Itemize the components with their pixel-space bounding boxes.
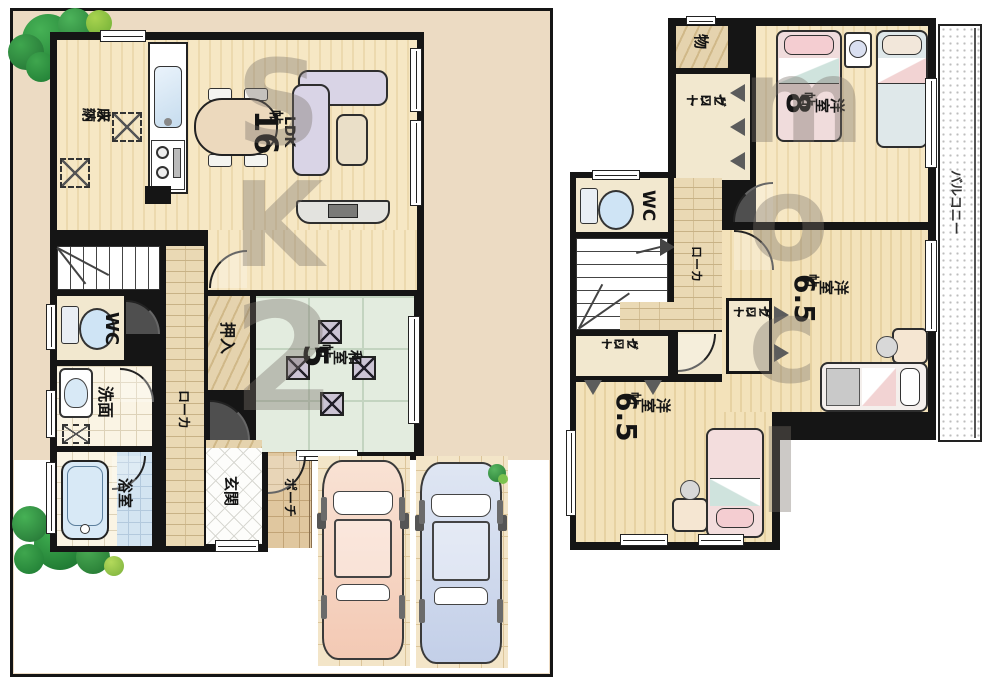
window bbox=[410, 48, 422, 112]
room-hallway-2f-stub bbox=[620, 302, 674, 330]
hanger-icon bbox=[730, 84, 745, 102]
window bbox=[620, 534, 668, 546]
hanger-icon bbox=[774, 344, 789, 362]
hanger-icon bbox=[730, 118, 745, 136]
bed-blanket bbox=[826, 368, 860, 406]
label-storage-2f: 物 bbox=[692, 34, 708, 49]
label-bath: 浴室 bbox=[116, 478, 132, 508]
bed-fold bbox=[878, 58, 926, 84]
bed-pillow-icon bbox=[882, 35, 922, 55]
chair-icon bbox=[876, 336, 898, 358]
desk bbox=[672, 498, 708, 532]
window bbox=[925, 78, 937, 168]
washbasin-bowl-icon bbox=[64, 378, 88, 408]
label-hallway-1f: ローカ bbox=[176, 390, 190, 429]
toilet-tank-icon bbox=[61, 306, 79, 344]
car-blue bbox=[420, 462, 502, 664]
bathtub-inner bbox=[67, 466, 103, 526]
window bbox=[46, 390, 56, 438]
tv-icon bbox=[328, 204, 358, 218]
car-pink bbox=[322, 460, 404, 660]
zabuton-cushion bbox=[320, 392, 344, 416]
bed-fold bbox=[862, 368, 896, 406]
car-windshield bbox=[431, 494, 492, 518]
window bbox=[686, 16, 716, 25]
hanger-icon bbox=[730, 152, 745, 170]
bed-fold bbox=[710, 478, 760, 506]
window bbox=[592, 170, 640, 180]
balcony-rail bbox=[974, 28, 976, 438]
car-roof bbox=[432, 521, 490, 580]
entrance-door bbox=[215, 540, 259, 552]
bed-pillow-icon bbox=[784, 35, 834, 55]
stove-grill-icon bbox=[173, 148, 181, 178]
lamp-icon bbox=[849, 40, 867, 58]
window bbox=[410, 120, 422, 206]
label-balcony: バルコニー bbox=[948, 170, 962, 235]
bath-faucet-icon bbox=[80, 524, 90, 534]
stove-burner-icon bbox=[156, 166, 169, 179]
window bbox=[566, 430, 576, 516]
label-senmen: 洗面 bbox=[96, 386, 113, 418]
car-rear-window bbox=[336, 584, 391, 602]
bed-fold bbox=[779, 58, 839, 84]
window bbox=[46, 304, 56, 350]
toilet-bowl-icon bbox=[598, 190, 634, 230]
tree-icon bbox=[104, 556, 124, 576]
hanger-icon bbox=[644, 380, 662, 395]
car-roof bbox=[334, 519, 392, 578]
label-hallway-2f: ローカ bbox=[690, 246, 703, 282]
plant-icon bbox=[498, 474, 508, 484]
chair-icon bbox=[680, 480, 700, 500]
kitchen-faucet-icon bbox=[164, 118, 172, 126]
floorplan-image: 床下収納 LDK 16帖 押入 和室 5帖 WC 洗面 浴室 ローカ 玄関 ポー… bbox=[0, 0, 1000, 685]
toilet-tank-icon bbox=[580, 188, 598, 224]
coffee-table bbox=[336, 114, 368, 166]
car-windshield bbox=[333, 491, 394, 515]
sofa-seat bbox=[292, 84, 330, 176]
stove-burner-icon bbox=[156, 146, 169, 159]
window bbox=[698, 534, 744, 546]
bed-pillow-icon bbox=[716, 508, 754, 528]
label-porch: ポーチ bbox=[282, 478, 296, 517]
hanger-icon bbox=[584, 380, 602, 395]
bed-pillow-icon bbox=[900, 368, 920, 406]
label-genkan: 玄関 bbox=[222, 476, 238, 506]
window bbox=[100, 30, 146, 42]
kitchen-wall-stub bbox=[145, 186, 171, 204]
floor-storage-hatch bbox=[60, 158, 90, 188]
floor-storage-hatch bbox=[112, 112, 142, 142]
label-wc-1f: WC bbox=[101, 312, 120, 345]
washing-machine-space bbox=[62, 424, 90, 444]
car-rear-window bbox=[434, 587, 489, 605]
window bbox=[46, 462, 56, 534]
tree-icon bbox=[14, 544, 44, 574]
balcony-door bbox=[925, 240, 937, 332]
genkan-step bbox=[206, 440, 262, 448]
stairs-arrowhead-icon bbox=[660, 238, 675, 256]
tree-icon bbox=[12, 506, 48, 542]
zabuton-cushion bbox=[318, 320, 342, 344]
label-oshiire: 押入 bbox=[218, 322, 235, 354]
label-wc-2f: WC bbox=[638, 190, 656, 221]
hanger-icon bbox=[774, 306, 789, 324]
window bbox=[408, 316, 420, 424]
